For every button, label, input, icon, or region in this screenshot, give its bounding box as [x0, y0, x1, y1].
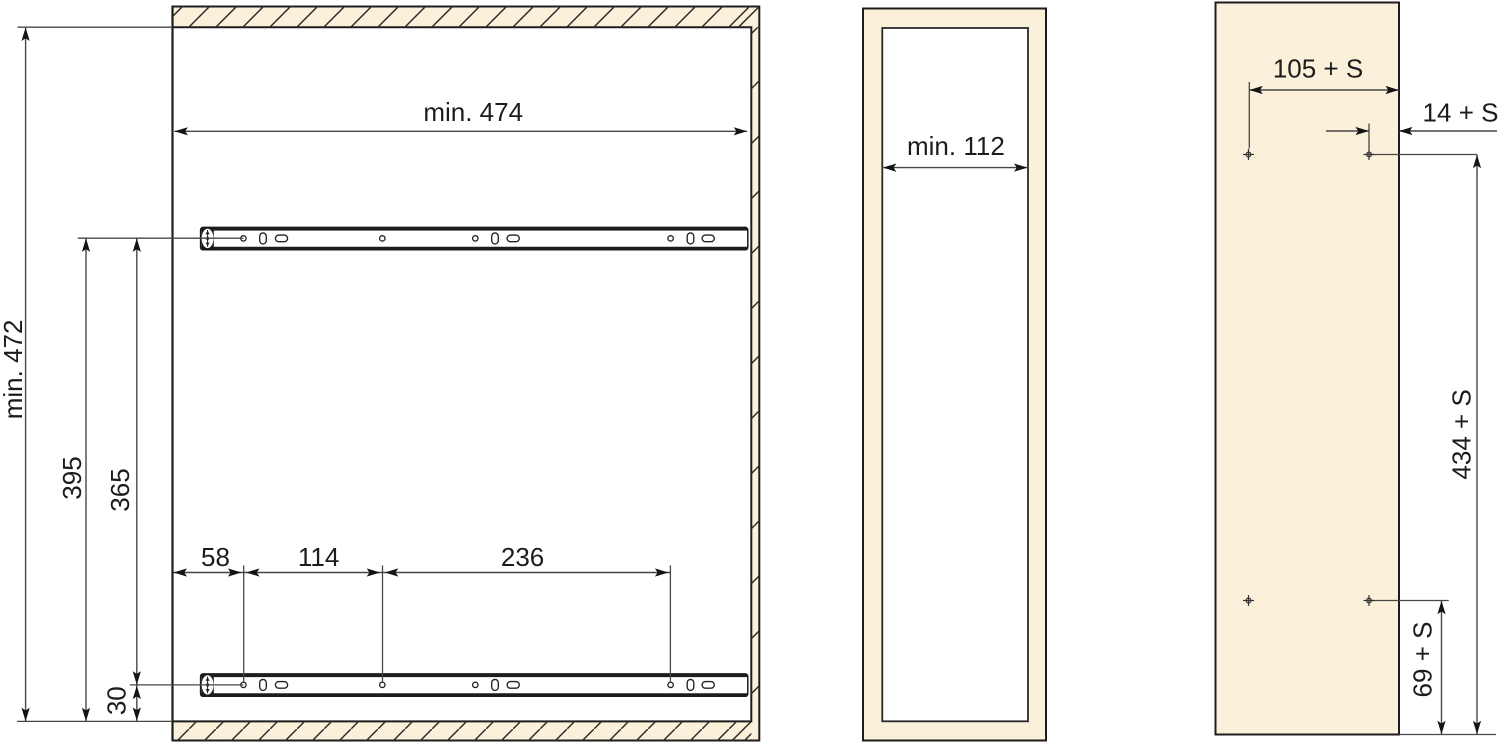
svg-text:min. 474: min. 474 — [423, 97, 523, 127]
svg-text:434 + S: 434 + S — [1447, 389, 1477, 479]
svg-text:114: 114 — [298, 542, 339, 572]
svg-text:min. 112: min. 112 — [907, 131, 1005, 161]
svg-text:min. 472: min. 472 — [0, 320, 28, 420]
svg-text:58: 58 — [201, 542, 230, 572]
svg-text:69 + S: 69 + S — [1408, 622, 1438, 698]
svg-text:14 + S: 14 + S — [1423, 98, 1499, 128]
svg-text:30: 30 — [102, 686, 132, 715]
svg-text:105 + S: 105 + S — [1273, 54, 1363, 84]
svg-text:236: 236 — [501, 542, 544, 572]
svg-text:365: 365 — [105, 468, 135, 511]
svg-text:395: 395 — [57, 456, 87, 499]
